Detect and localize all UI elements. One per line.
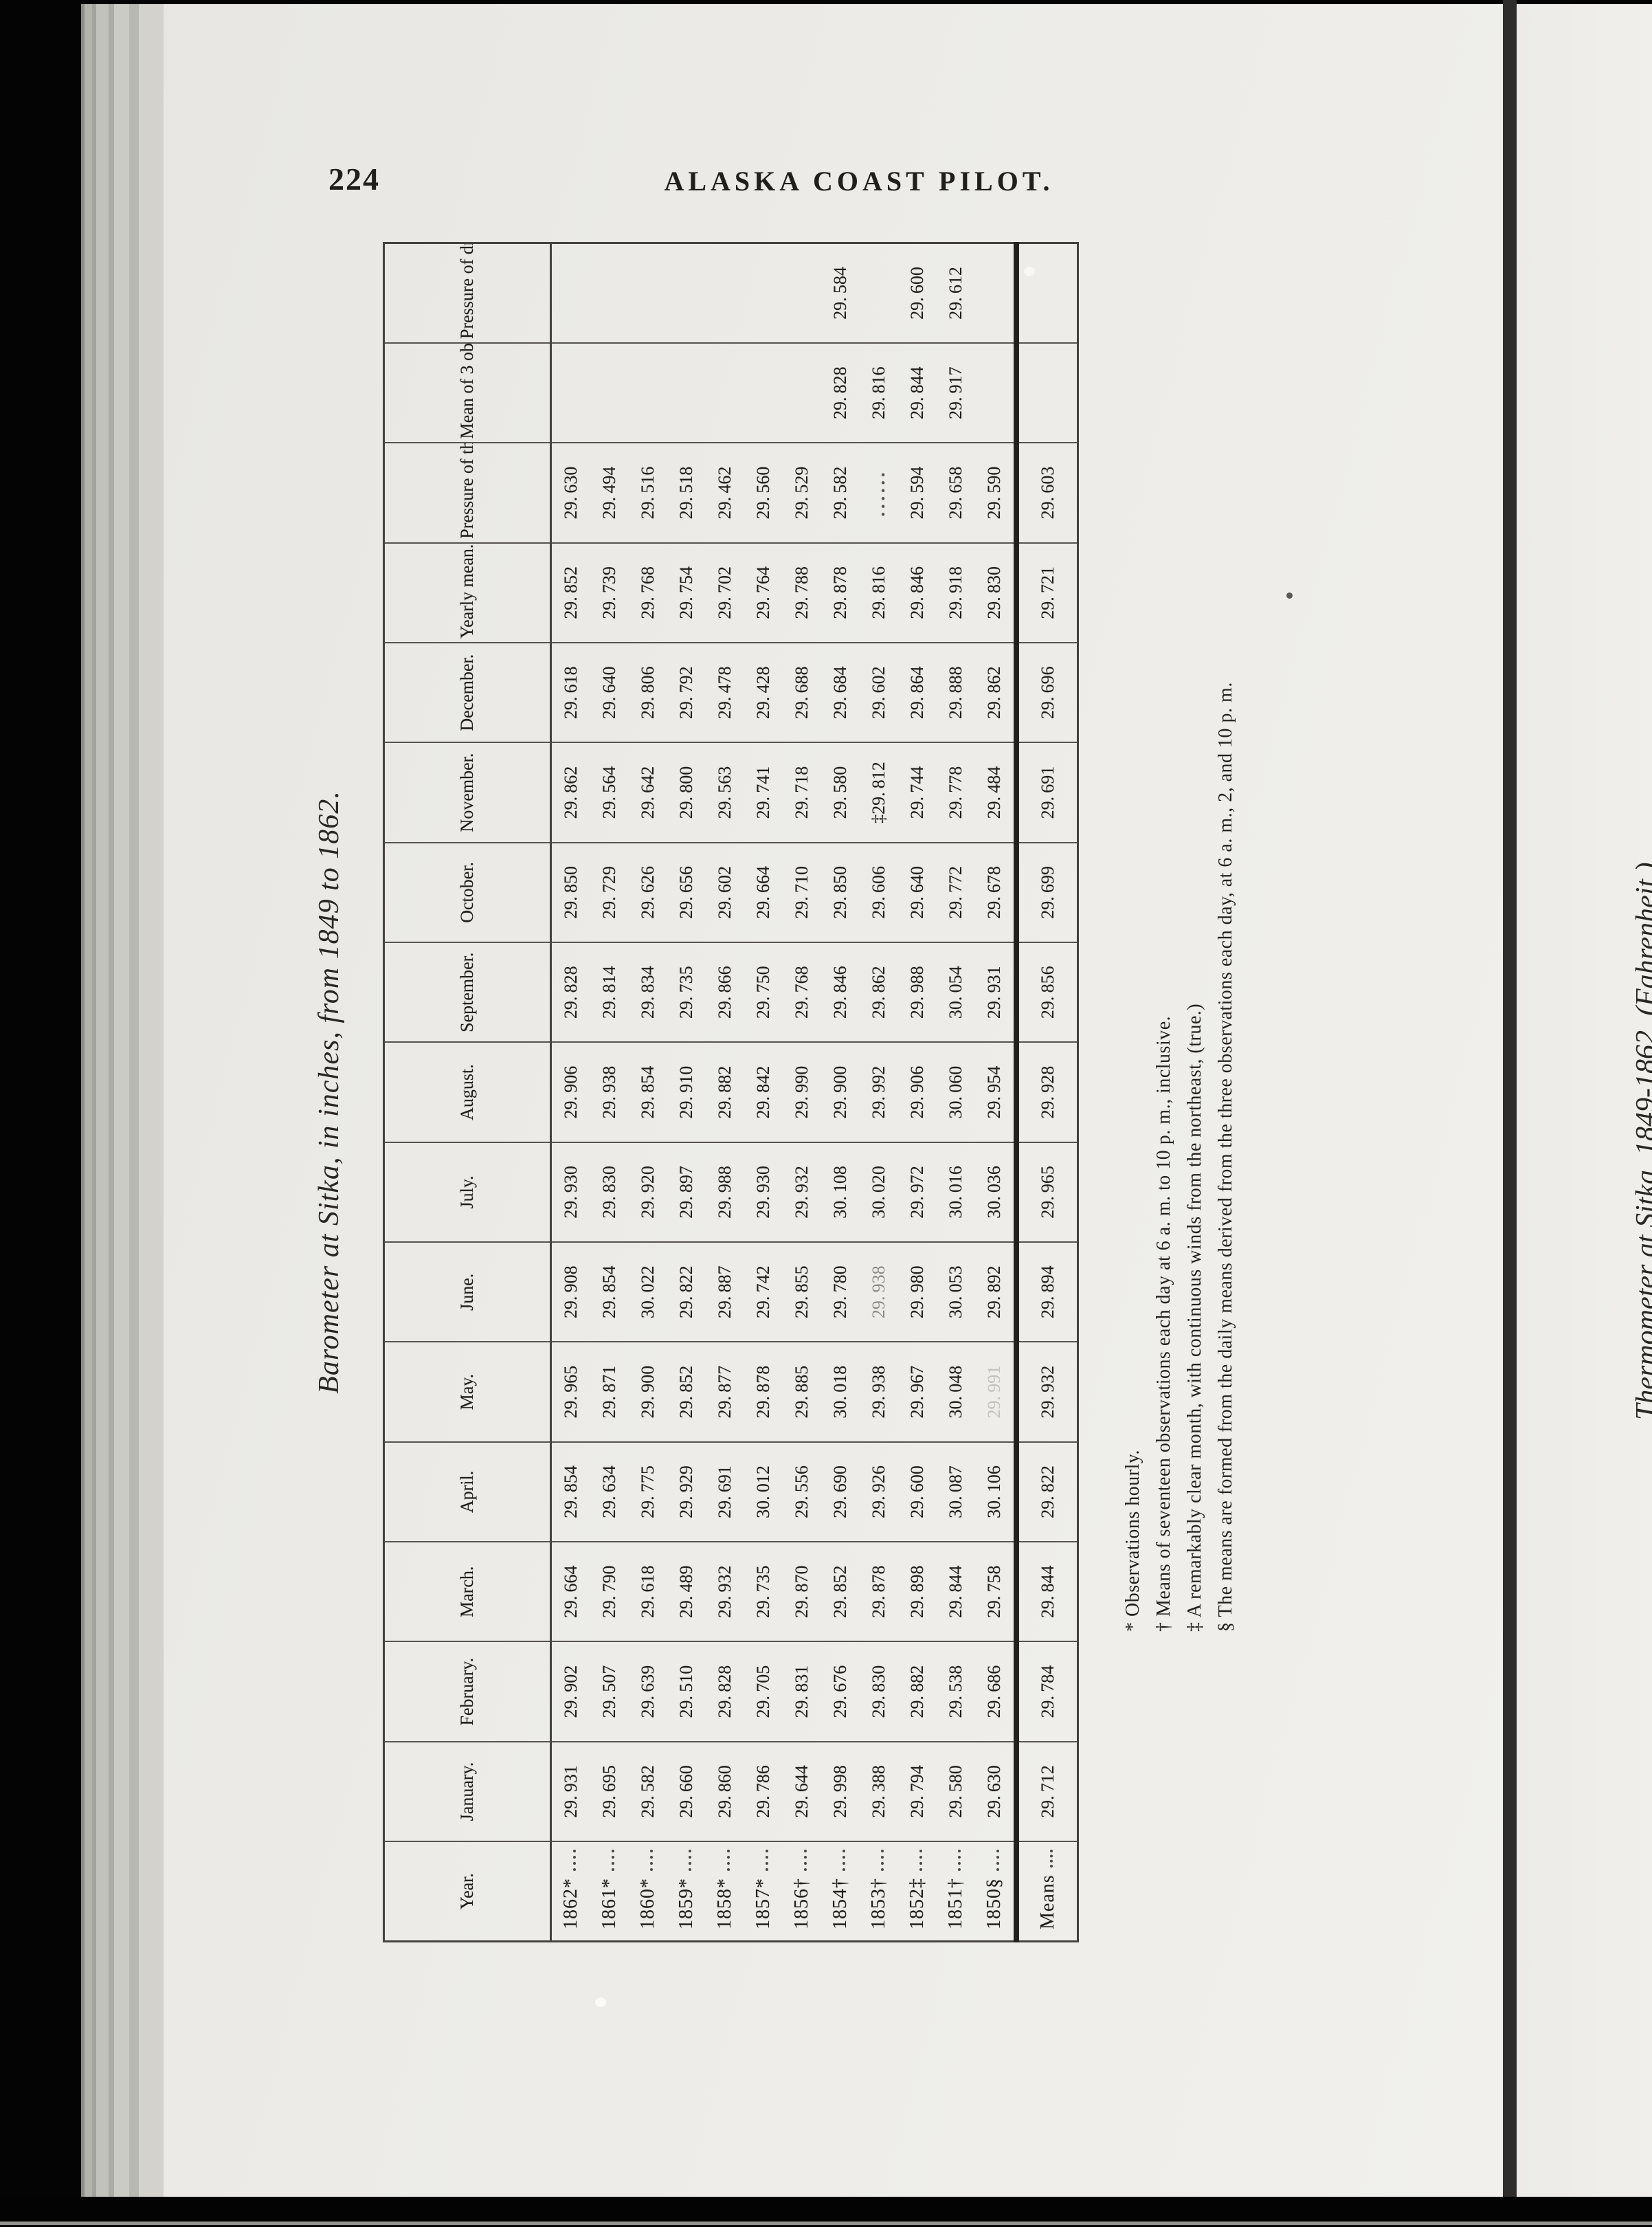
table-body: Year.January.February.March.April.May.Ju…: [384, 243, 1078, 1942]
barometer-value: 29. 814: [599, 966, 619, 1019]
barometer-value: 29. 862: [984, 666, 1004, 719]
barometer-value: 29. 846: [830, 966, 850, 1019]
value-cell: 29. 664: [551, 1542, 591, 1641]
barometer-value: 29. 931: [561, 1765, 581, 1818]
barometer-value: 29. 538: [946, 1665, 965, 1718]
row-year-label: 1853†: [860, 1841, 898, 1941]
page-gutter-shadow: [1503, 0, 1517, 2197]
barometer-value: 29. 602: [715, 866, 735, 919]
value-cell: 29. 866: [706, 942, 744, 1042]
column-header: July.: [384, 1142, 551, 1242]
barometer-value: 29. 518: [676, 467, 696, 520]
value-cell: 29. 684: [821, 643, 860, 742]
leader-dots: [611, 1850, 614, 1871]
barometer-value: 29. 856: [1038, 966, 1058, 1019]
value-cell: 29. 696: [1016, 643, 1078, 742]
barometer-value: 29. 882: [715, 1066, 735, 1119]
value-cell: 29. 932: [783, 1142, 821, 1242]
value-cell: 29. 842: [744, 1042, 783, 1142]
barometer-value: 29. 640: [599, 666, 619, 719]
value-cell: 29. 854: [590, 1242, 629, 1342]
barometer-value: 29. 930: [561, 1166, 581, 1219]
leader-dots: [649, 1850, 653, 1871]
barometer-value: 30. 012: [753, 1465, 773, 1518]
column-header: December.: [384, 643, 551, 742]
table-title: Barometer at Sitka, in inches, from 1849…: [313, 242, 346, 1942]
value-cell: [629, 343, 667, 443]
value-cell: 30. 012: [744, 1442, 783, 1542]
barometer-value: 29. 676: [830, 1665, 850, 1718]
value-cell: 29. 580: [821, 742, 860, 842]
value-cell: 29. 758: [975, 1542, 1016, 1641]
value-cell: 29. 618: [551, 643, 591, 742]
value-cell: 29. 870: [783, 1542, 821, 1641]
value-cell: 29. 991: [975, 1342, 1016, 1441]
barometer-value: 29. 954: [984, 1066, 1004, 1119]
value-cell: 29. 852: [551, 543, 591, 643]
value-cell: 29. 898: [898, 1542, 937, 1641]
barometer-value: 29. 800: [676, 766, 696, 819]
value-cell: 29. 998: [821, 1742, 860, 1841]
value-cell: 29. 882: [706, 1042, 744, 1142]
barometer-value: 29. 630: [984, 1765, 1004, 1818]
barometer-value: 29. 602: [869, 666, 889, 719]
barometer-value: 29. 965: [561, 1366, 581, 1419]
barometer-value: 29. 816: [869, 566, 889, 619]
barometer-value: 29. 772: [946, 866, 965, 919]
column-header: Mean of 3 obs., 6 a. m., 2 and 10 p. m.: [384, 343, 551, 443]
value-cell: 29. 860: [706, 1742, 744, 1841]
barometer-value: 29. 878: [869, 1565, 889, 1618]
value-cell: [975, 343, 1016, 443]
value-cell: 29. 794: [898, 1742, 937, 1841]
value-cell: 29. 878: [821, 543, 860, 643]
value-cell: 30. 087: [937, 1442, 975, 1542]
value-cell: 29. 744: [898, 742, 937, 842]
barometer-value: 29. 830: [599, 1166, 619, 1219]
barometer-value: 30. 053: [946, 1265, 965, 1318]
barometer-value: 29. 484: [984, 766, 1004, 819]
value-cell: 29. 735: [667, 942, 706, 1042]
barometer-value: 30. 048: [946, 1366, 965, 1419]
value-cell: 29. 786: [744, 1742, 783, 1841]
barometer-value: 30. 108: [830, 1166, 850, 1219]
barometer-value: 29. 768: [638, 566, 658, 619]
barometer-value: 29. 739: [599, 566, 619, 619]
barometer-value: 29. 563: [715, 766, 735, 819]
value-cell: 29. 988: [898, 942, 937, 1042]
barometer-value: 29. 844: [946, 1565, 965, 1618]
value-cell: 29. 775: [629, 1442, 667, 1542]
barometer-value: 29. 721: [1038, 566, 1058, 619]
barometer-value: 29. 712: [1038, 1765, 1058, 1818]
value-cell: 29. 564: [590, 742, 629, 842]
barometer-value: 29. 866: [715, 966, 735, 1019]
value-cell: 29. 582: [629, 1742, 667, 1841]
barometer-value: 29. 489: [676, 1565, 696, 1618]
value-cell: 29. 892: [975, 1242, 1016, 1342]
value-cell: 29. 626: [629, 843, 667, 942]
value-cell: 29. 780: [821, 1242, 860, 1342]
value-cell: 29. 830: [975, 543, 1016, 643]
barometer-value: 30. 106: [984, 1465, 1004, 1518]
leader-dots: [726, 1850, 730, 1871]
column-header: October.: [384, 843, 551, 942]
barometer-value: 29. 582: [638, 1765, 658, 1818]
value-cell: 29. 484: [975, 742, 1016, 842]
barometer-value: 29. 930: [753, 1166, 773, 1219]
barometer-value: 29. 932: [792, 1166, 812, 1219]
column-header: March.: [384, 1542, 551, 1641]
barometer-value: 29. 932: [715, 1565, 735, 1618]
value-cell: 29. 844: [898, 343, 937, 443]
barometer-table: Year.January.February.March.April.May.Ju…: [383, 242, 1079, 1942]
value-cell: [590, 343, 629, 443]
value-cell: 29. 852: [821, 1542, 860, 1641]
value-cell: 29. 658: [937, 443, 975, 542]
value-cell: 29. 642: [629, 742, 667, 842]
leader-dots: [919, 1850, 922, 1871]
barometer-value: 29. 871: [599, 1366, 619, 1419]
value-cell: 29. 556: [783, 1442, 821, 1542]
value-cell: ......: [860, 443, 898, 542]
barometer-value: 29. 478: [715, 666, 735, 719]
value-cell: 29. 603: [1016, 443, 1078, 542]
value-cell: [744, 243, 783, 344]
value-cell: 29. 871: [590, 1342, 629, 1441]
value-cell: 29. 688: [783, 643, 821, 742]
year-text: 1850§: [983, 1878, 1005, 1929]
year-text: 1851†: [945, 1878, 967, 1929]
value-cell: 29. 695: [590, 1742, 629, 1841]
barometer-value: 29. 830: [869, 1665, 889, 1718]
barometer-value: 30. 054: [946, 966, 965, 1019]
value-cell: 29. 854: [551, 1442, 591, 1542]
value-cell: 29. 691: [706, 1442, 744, 1542]
value-cell: 29. 590: [975, 443, 1016, 542]
barometer-value: 29. 892: [984, 1265, 1004, 1318]
barometer-value: 29. 828: [561, 966, 581, 1019]
value-cell: 29. 862: [551, 742, 591, 842]
value-cell: 29. 926: [860, 1442, 898, 1542]
value-cell: 29. 428: [744, 643, 783, 742]
barometer-value: 29. 920: [638, 1166, 658, 1219]
barometer-value: 29. 822: [676, 1265, 696, 1318]
value-cell: 29. 582: [821, 443, 860, 542]
year-text: 1861*: [599, 1878, 621, 1929]
value-cell: 29. 735: [744, 1542, 783, 1641]
value-cell: 29. 644: [783, 1742, 821, 1841]
value-cell: 29. 855: [783, 1242, 821, 1342]
column-header: April.: [384, 1442, 551, 1542]
barometer-value: 29. 908: [561, 1265, 581, 1318]
table-row: 1860*29. 58229. 63929. 61829. 77529. 900…: [629, 243, 667, 1942]
value-cell: 29. 602: [860, 643, 898, 742]
value-cell: 29. 856: [1016, 942, 1078, 1042]
value-cell: 29. 862: [860, 942, 898, 1042]
value-cell: 30. 048: [937, 1342, 975, 1441]
year-text: 1858*: [714, 1878, 736, 1929]
facing-page-title: Thermometer at Sitka, 1849-1862. (Fahren…: [1630, 726, 1652, 1420]
value-cell: 29. 852: [667, 1342, 706, 1441]
value-cell: [1016, 243, 1078, 344]
barometer-value: 29. 938: [869, 1366, 889, 1419]
value-cell: [783, 243, 821, 344]
value-cell: 29. 640: [590, 643, 629, 742]
barometer-value: 29. 844: [1038, 1565, 1058, 1618]
barometer-value: 29. 862: [561, 766, 581, 819]
value-cell: 29. 518: [667, 443, 706, 542]
barometer-value: 29. 775: [638, 1465, 658, 1518]
value-cell: 29. 584: [821, 243, 860, 344]
barometer-value: 30. 018: [830, 1366, 850, 1419]
barometer-value: 29. 564: [599, 766, 619, 819]
value-cell: 29. 634: [590, 1442, 629, 1542]
barometer-value: 29. 852: [830, 1565, 850, 1618]
barometer-value: 29. 938: [869, 1265, 889, 1318]
barometer-value: 29. 642: [638, 766, 658, 819]
leader-dots: [842, 1850, 845, 1871]
value-cell: 29. 788: [783, 543, 821, 643]
barometer-value: 29. 887: [715, 1265, 735, 1318]
value-cell: 30. 036: [975, 1142, 1016, 1242]
barometer-value: 29. 656: [676, 866, 696, 919]
barometer-value: 29. 758: [984, 1565, 1004, 1618]
value-cell: 29. 930: [551, 1142, 591, 1242]
paper-speck: [595, 1997, 606, 2007]
value-cell: 30. 106: [975, 1442, 1016, 1542]
table-row: 1854†29. 99829. 67629. 85229. 69030. 018…: [821, 243, 860, 1942]
value-cell: 29. 938: [860, 1342, 898, 1441]
paper-speck: [1286, 592, 1293, 599]
value-cell: 29. 772: [937, 843, 975, 942]
barometer-value: 29. 828: [830, 366, 850, 419]
barometer-value: 29. 612: [946, 267, 965, 320]
value-cell: 29. 606: [860, 843, 898, 942]
value-cell: 29. 931: [551, 1742, 591, 1841]
column-header: January.: [384, 1742, 551, 1841]
barometer-value: 29. 696: [1038, 666, 1058, 719]
barometer-value: 29. 929: [676, 1465, 696, 1518]
footnote-line: † Means of seventeen observations each d…: [1148, 242, 1179, 1632]
value-cell: [1016, 343, 1078, 443]
barometer-value: 29. 735: [753, 1565, 773, 1618]
leader-dots: [996, 1850, 999, 1871]
barometer-value: 29. 590: [984, 467, 1004, 520]
means-row: Means29. 71229. 78429. 84429. 82229. 932…: [1016, 243, 1078, 1942]
value-cell: 29. 816: [860, 543, 898, 643]
value-cell: [667, 243, 706, 344]
table-row: 1858*29. 86029. 82829. 93229. 69129. 877…: [706, 243, 744, 1942]
barometer-value: 29. 584: [830, 267, 850, 320]
value-cell: 29. 729: [590, 843, 629, 942]
barometer-value: 29. 744: [907, 766, 927, 819]
column-header: Year.: [384, 1841, 551, 1941]
value-cell: 29. 529: [783, 443, 821, 542]
value-cell: 29. 705: [744, 1641, 783, 1741]
value-cell: 29. 699: [1016, 843, 1078, 942]
barometer-value: 29. 702: [715, 566, 735, 619]
barometer-value: 29. 846: [907, 566, 927, 619]
value-cell: [706, 343, 744, 443]
value-cell: 29. 864: [898, 643, 937, 742]
table-row: 1862*29. 93129. 90229. 66429. 85429. 965…: [551, 243, 591, 1942]
barometer-value: 29. 850: [561, 866, 581, 919]
value-cell: 29. 828: [551, 942, 591, 1042]
value-cell: 29. 630: [975, 1742, 1016, 1841]
barometer-value: 29. 644: [792, 1765, 812, 1818]
value-cell: 29. 510: [667, 1641, 706, 1741]
value-cell: 29. 929: [667, 1442, 706, 1542]
value-cell: 29. 954: [975, 1042, 1016, 1142]
column-header: September.: [384, 942, 551, 1042]
value-cell: 29. 992: [860, 1042, 898, 1142]
value-cell: 30. 020: [860, 1142, 898, 1242]
barometer-value: 30. 022: [638, 1265, 658, 1318]
barometer-value: 29. 388: [869, 1765, 889, 1818]
value-cell: 29. 691: [1016, 742, 1078, 842]
value-cell: 29. 560: [744, 443, 783, 542]
barometer-value: 29. 792: [676, 666, 696, 719]
value-cell: [667, 343, 706, 443]
value-cell: 29. 742: [744, 1242, 783, 1342]
barometer-value: 29. 885: [792, 1366, 812, 1419]
barometer-value: 29. 754: [676, 566, 696, 619]
value-cell: [783, 343, 821, 443]
value-cell: 29. 710: [783, 843, 821, 942]
barometer-value: 29. 790: [599, 1565, 619, 1618]
barometer-value: 29. 678: [984, 866, 1004, 919]
barometer-value: 29. 710: [792, 866, 812, 919]
barometer-value: 29. 988: [715, 1166, 735, 1219]
barometer-value: 29. 831: [792, 1665, 812, 1718]
value-cell: 29. 846: [821, 942, 860, 1042]
value-cell: [706, 243, 744, 344]
value-cell: 29. 894: [1016, 1242, 1078, 1342]
barometer-value: 29. 830: [984, 566, 1004, 619]
barometer-value: 29. 780: [830, 1265, 850, 1318]
barometer-value: 29. 898: [907, 1565, 927, 1618]
value-cell: 29. 516: [629, 443, 667, 542]
barometer-value: 29. 626: [638, 866, 658, 919]
barometer-value: 29. 816: [869, 366, 889, 419]
barometer-value: 29. 507: [599, 1665, 619, 1718]
value-cell: 29. 878: [744, 1342, 783, 1441]
barometer-value: 29. 639: [638, 1665, 658, 1718]
value-cell: 29. 618: [629, 1542, 667, 1641]
barometer-value: 29. 560: [753, 467, 773, 520]
value-cell: 29. 972: [898, 1142, 937, 1242]
table-row: 1857*29. 78629. 70529. 73530. 01229. 878…: [744, 243, 783, 1942]
leader-dots: [688, 1850, 691, 1871]
row-year-label: 1850§: [975, 1841, 1016, 1941]
barometer-value: 29. 992: [869, 1066, 889, 1119]
barometer-value: 29. 864: [907, 666, 927, 719]
barometer-value: 30. 087: [946, 1465, 965, 1518]
value-cell: 29. 931: [975, 942, 1016, 1042]
value-cell: 29. 754: [667, 543, 706, 643]
year-text: 1862*: [560, 1878, 582, 1929]
value-cell: 29. 908: [551, 1242, 591, 1342]
value-cell: 29. 507: [590, 1641, 629, 1741]
barometer-value: ‡29. 812: [869, 762, 889, 823]
value-cell: 29. 494: [590, 443, 629, 542]
column-header: February.: [384, 1641, 551, 1741]
row-year-label: 1859*: [667, 1841, 706, 1941]
barometer-value: 29. 852: [676, 1366, 696, 1419]
barometer-value: 29. 998: [830, 1765, 850, 1818]
table-row: 1859*29. 66029. 51029. 48929. 92929. 852…: [667, 243, 706, 1942]
barometer-value: 29. 967: [907, 1366, 927, 1419]
barometer-value: 29. 900: [830, 1066, 850, 1119]
barometer-value: 29. 900: [638, 1366, 658, 1419]
value-cell: 29. 806: [629, 643, 667, 742]
barometer-value: 29. 582: [830, 467, 850, 520]
value-cell: 29. 878: [860, 1542, 898, 1641]
barometer-value: 29. 778: [946, 766, 965, 819]
barometer-value: 29. 828: [715, 1665, 735, 1718]
barometer-value: 29. 764: [753, 566, 773, 619]
value-cell: 29. 656: [667, 843, 706, 942]
barometer-value: 29. 594: [907, 467, 927, 520]
value-cell: 29. 678: [975, 843, 1016, 942]
value-cell: 29. 830: [860, 1641, 898, 1741]
value-cell: 29. 580: [937, 1742, 975, 1841]
value-cell: 29. 686: [975, 1641, 1016, 1741]
value-cell: 29. 388: [860, 1742, 898, 1841]
value-cell: 29. 612: [937, 243, 975, 344]
barometer-value: 30. 036: [984, 1166, 1004, 1219]
column-header: Yearly mean.: [384, 543, 551, 643]
barometer-value: 29. 735: [676, 966, 696, 1019]
value-cell: 29. 602: [706, 843, 744, 942]
value-cell: 29. 965: [551, 1342, 591, 1441]
barometer-value: 29. 786: [753, 1765, 773, 1818]
value-cell: 29. 814: [590, 942, 629, 1042]
barometer-value: 30. 016: [946, 1166, 965, 1219]
value-cell: 29. 831: [783, 1641, 821, 1741]
value-cell: 29. 888: [937, 643, 975, 742]
value-cell: [590, 243, 629, 344]
value-cell: 29. 928: [1016, 1042, 1078, 1142]
value-cell: 29. 900: [821, 1042, 860, 1142]
barometer-value: 29. 855: [792, 1265, 812, 1318]
value-cell: 30. 053: [937, 1242, 975, 1342]
barometer-value: 29. 917: [946, 366, 965, 419]
value-cell: [551, 243, 591, 344]
value-cell: 29. 600: [898, 243, 937, 344]
barometer-value: 29. 606: [869, 866, 889, 919]
value-cell: 29. 739: [590, 543, 629, 643]
barometer-value: 29. 729: [599, 866, 619, 919]
value-cell: 29. 750: [744, 942, 783, 1042]
barometer-value: 29. 860: [715, 1765, 735, 1818]
value-cell: 29. 918: [937, 543, 975, 643]
column-header: Pressure of dry air.: [384, 243, 551, 344]
barometer-value: 29. 664: [753, 866, 773, 919]
barometer-value: 29. 991: [984, 1366, 1004, 1419]
barometer-value: 29. 980: [907, 1265, 927, 1318]
value-cell: 29. 897: [667, 1142, 706, 1242]
barometer-value: 29. 794: [907, 1765, 927, 1818]
barometer-value: 30. 020: [869, 1166, 889, 1219]
value-cell: 29. 660: [667, 1742, 706, 1841]
barometer-value: 29. 822: [1038, 1465, 1058, 1518]
barometer-value: 29. 882: [907, 1665, 927, 1718]
barometer-value: 29. 699: [1038, 866, 1058, 919]
barometer-value: 29. 718: [792, 766, 812, 819]
value-cell: [744, 343, 783, 443]
